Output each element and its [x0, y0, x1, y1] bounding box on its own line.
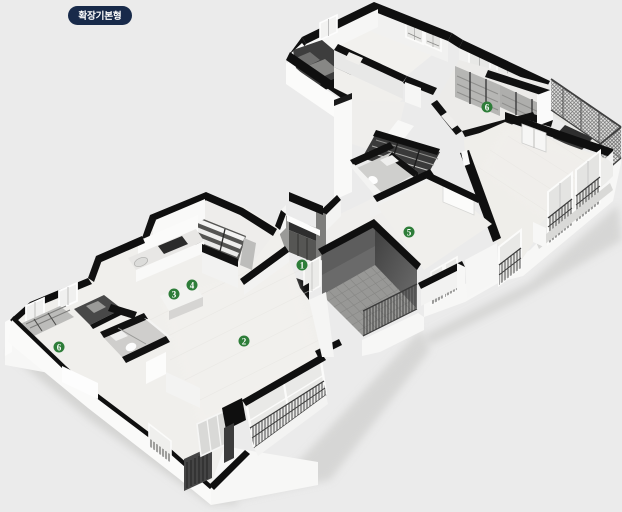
- svg-text:1: 1: [300, 261, 305, 271]
- svg-text:확장기본형: 확장기본형: [78, 10, 121, 22]
- svg-text:6: 6: [485, 103, 490, 113]
- svg-text:5: 5: [407, 228, 412, 238]
- svg-text:6: 6: [57, 343, 62, 353]
- svg-text:3: 3: [172, 290, 177, 300]
- svg-text:2: 2: [242, 337, 247, 347]
- svg-text:4: 4: [190, 281, 195, 291]
